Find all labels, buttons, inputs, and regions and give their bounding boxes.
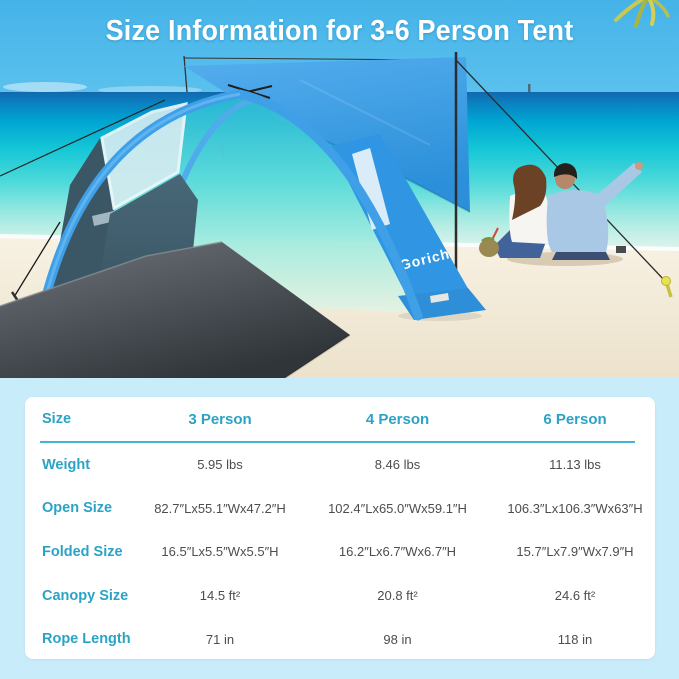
row-label: Rope Length — [25, 631, 140, 647]
table-cell: 102.4″Lx65.0″Wx59.1″H — [300, 501, 495, 516]
table-cell: 82.7″Lx55.1″Wx47.2″H — [140, 501, 300, 516]
table-cell: 11.13 lbs — [495, 457, 655, 472]
camera-on-sand — [616, 246, 626, 253]
table-row-weight: Weight 5.95 lbs 8.46 lbs 11.13 lbs — [25, 443, 655, 487]
beach-photo: Gorich — [0, 0, 679, 378]
beach-scene-illustration: Gorich — [0, 0, 679, 378]
table-row-canopy-size: Canopy Size 14.5 ft² 20.8 ft² 24.6 ft² — [25, 574, 655, 618]
col-header-size: Size — [25, 411, 140, 427]
table-cell: 15.7″Lx7.9″Wx7.9″H — [495, 544, 655, 559]
table-cell: 71 in — [140, 632, 300, 647]
col-header-6-person: 6 Person — [495, 411, 655, 428]
table-row-open-size: Open Size 82.7″Lx55.1″Wx47.2″H 102.4″Lx6… — [25, 487, 655, 531]
row-label: Open Size — [25, 500, 140, 516]
table-cell: 16.2″Lx6.7″Wx6.7″H — [300, 544, 495, 559]
table-row-rope-length: Rope Length 71 in 98 in 118 in — [25, 617, 655, 661]
table-row-folded-size: Folded Size 16.5″Lx5.5″Wx5.5″H 16.2″Lx6.… — [25, 530, 655, 574]
row-label: Canopy Size — [25, 588, 140, 604]
table-cell: 8.46 lbs — [300, 457, 495, 472]
row-label: Folded Size — [25, 544, 140, 560]
col-header-4-person: 4 Person — [300, 411, 495, 428]
man-hand — [635, 162, 643, 170]
row-label: Weight — [25, 457, 140, 473]
beach-towel — [612, 253, 630, 256]
size-table-header: Size 3 Person 4 Person 6 Person — [25, 397, 655, 441]
table-cell: 106.3″Lx106.3″Wx63″H — [495, 501, 655, 516]
product-infographic: Gorich — [0, 0, 679, 679]
size-table-card: Size 3 Person 4 Person 6 Person Weight 5… — [25, 397, 655, 659]
cloud — [3, 82, 87, 92]
table-cell: 16.5″Lx5.5″Wx5.5″H — [140, 544, 300, 559]
sailboat — [528, 84, 531, 92]
table-cell: 24.6 ft² — [495, 588, 655, 603]
table-cell: 20.8 ft² — [300, 588, 495, 603]
table-cell: 98 in — [300, 632, 495, 647]
table-cell: 14.5 ft² — [140, 588, 300, 603]
page-title: Size Information for 3-6 Person Tent — [24, 15, 655, 48]
size-info-section: Size 3 Person 4 Person 6 Person Weight 5… — [0, 378, 679, 679]
col-header-3-person: 3 Person — [140, 411, 300, 428]
table-cell: 118 in — [495, 632, 655, 647]
table-cell: 5.95 lbs — [140, 457, 300, 472]
